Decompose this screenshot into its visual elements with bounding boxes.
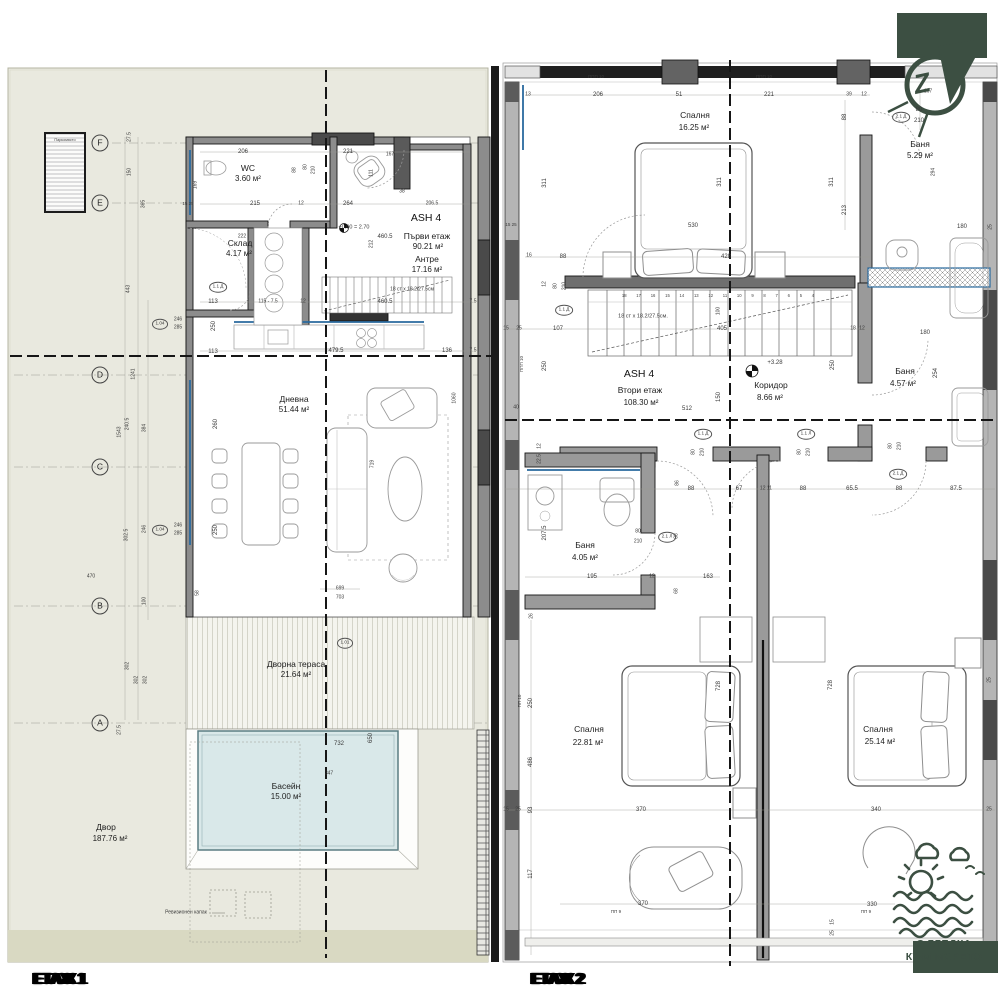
stairs-floor2 <box>588 290 852 356</box>
level-marker-floor2 <box>746 365 758 377</box>
stairs-floor1 <box>322 277 452 313</box>
hatched-wall-band <box>868 268 990 287</box>
plan-linework <box>0 0 1000 1000</box>
floor1-title: ЕТАЖ 1 <box>32 971 85 989</box>
level-marker-floor1 <box>340 224 349 233</box>
parking-spot <box>45 133 85 212</box>
right-wall-floor2 <box>983 82 997 960</box>
left-plan <box>8 68 497 962</box>
terrace-area <box>186 617 474 729</box>
badge-line-2: КЪМ МОРЕТО <box>906 951 982 963</box>
floorplan-sheet: WC3.60 м²Склад4.17 м²ASH 4Първи етаж90.2… <box>0 0 1000 1000</box>
pool <box>186 729 418 869</box>
floor2-title: ЕТАЖ 2 <box>530 971 583 989</box>
badge-line-1: С ГЛЕДКА <box>916 938 971 950</box>
right-plan <box>503 13 998 973</box>
